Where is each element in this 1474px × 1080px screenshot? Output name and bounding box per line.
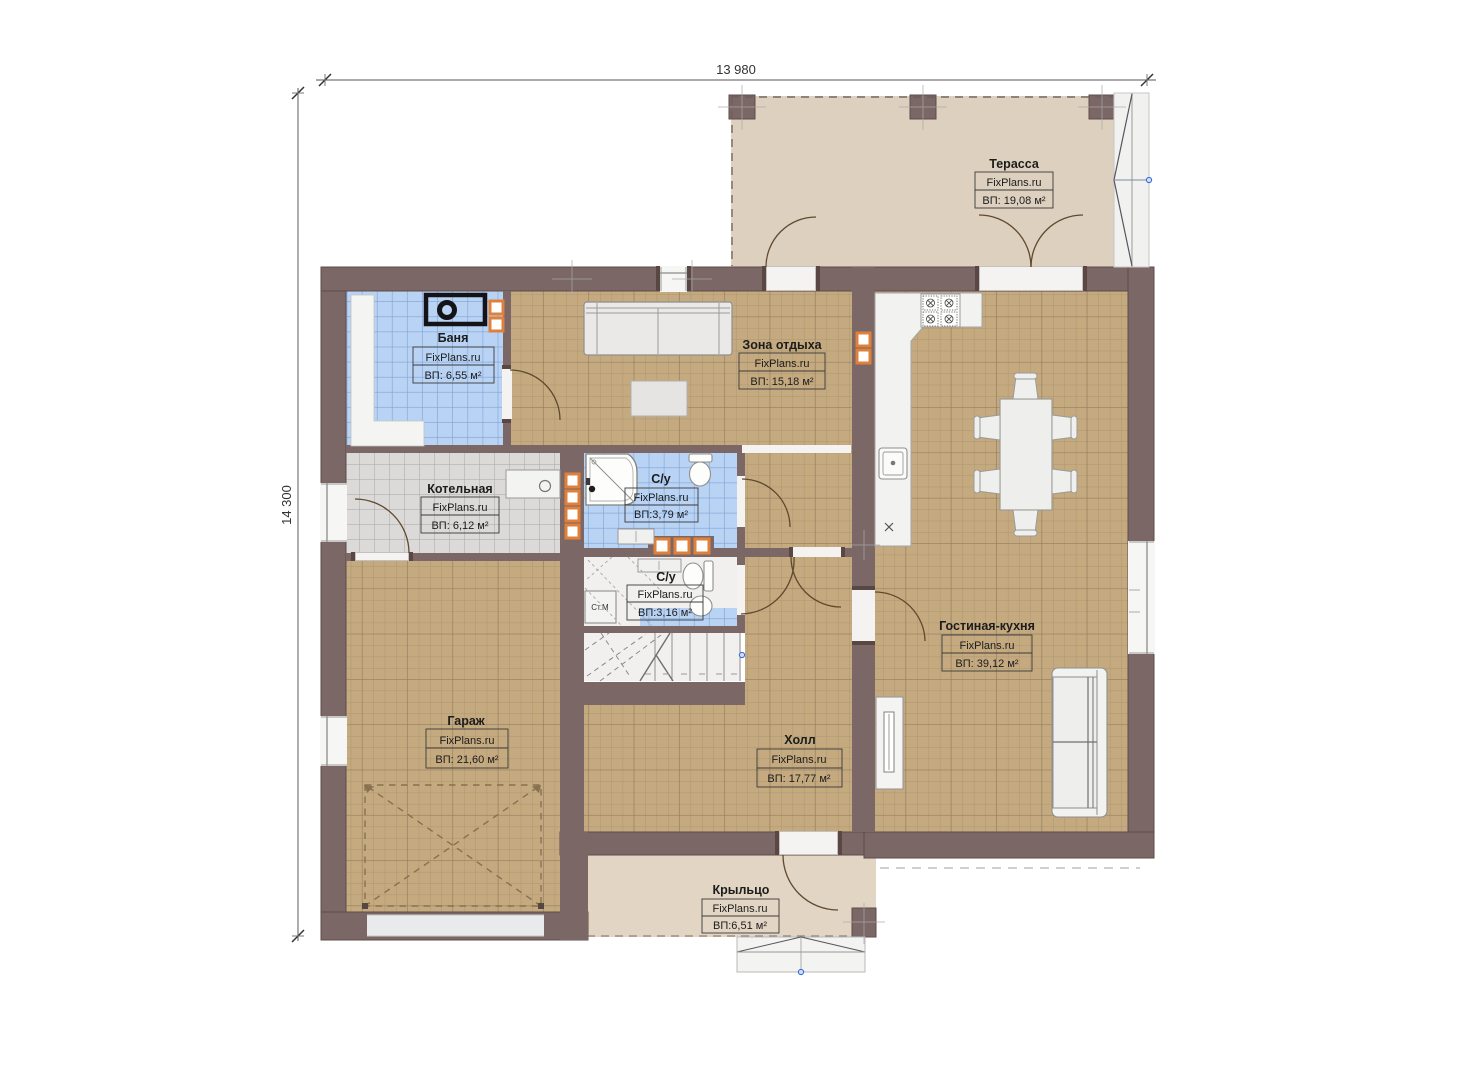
svg-text:FixPlans.ru: FixPlans.ru (637, 589, 692, 601)
svg-text:Терасса: Терасса (989, 157, 1040, 171)
svg-text:FixPlans.ru: FixPlans.ru (439, 735, 494, 747)
svg-text:Ст.М: Ст.М (591, 603, 609, 612)
svg-text:ВП: 17,77 м²: ВП: 17,77 м² (767, 773, 831, 785)
svg-text:FixPlans.ru: FixPlans.ru (771, 754, 826, 766)
svg-text:FixPlans.ru: FixPlans.ru (959, 640, 1014, 652)
svg-text:Холл: Холл (784, 733, 815, 747)
svg-text:Гостиная-кухня: Гостиная-кухня (939, 619, 1035, 633)
svg-text:FixPlans.ru: FixPlans.ru (754, 358, 809, 370)
svg-text:ВП: 6,12 м²: ВП: 6,12 м² (431, 520, 488, 532)
svg-text:ВП:3,16 м²: ВП:3,16 м² (638, 607, 692, 619)
svg-text:14 300: 14 300 (279, 485, 294, 525)
svg-text:ВП: 6,55 м²: ВП: 6,55 м² (424, 370, 481, 382)
svg-text:13 980: 13 980 (716, 62, 756, 77)
svg-text:С/у: С/у (651, 472, 671, 486)
svg-text:FixPlans.ru: FixPlans.ru (432, 502, 487, 514)
svg-text:FixPlans.ru: FixPlans.ru (425, 352, 480, 364)
svg-text:С/у: С/у (656, 570, 676, 584)
svg-text:Зона отдыха: Зона отдыха (742, 338, 822, 352)
svg-text:Гараж: Гараж (447, 714, 484, 728)
svg-text:ВП: 19,08 м²: ВП: 19,08 м² (982, 195, 1046, 207)
svg-text:ВП: 15,18 м²: ВП: 15,18 м² (750, 376, 814, 388)
svg-text:ВП:3,79 м²: ВП:3,79 м² (634, 509, 688, 521)
svg-text:FixPlans.ru: FixPlans.ru (986, 177, 1041, 189)
svg-text:FixPlans.ru: FixPlans.ru (633, 492, 688, 504)
svg-text:Котельная: Котельная (427, 482, 492, 496)
svg-text:FixPlans.ru: FixPlans.ru (712, 903, 767, 915)
svg-text:ВП:6,51 м²: ВП:6,51 м² (713, 920, 767, 932)
svg-text:Баня: Баня (438, 331, 469, 345)
svg-text:ВП: 39,12 м²: ВП: 39,12 м² (955, 658, 1019, 670)
svg-text:Крыльцо: Крыльцо (713, 883, 770, 897)
svg-text:ВП: 21,60 м²: ВП: 21,60 м² (435, 754, 499, 766)
